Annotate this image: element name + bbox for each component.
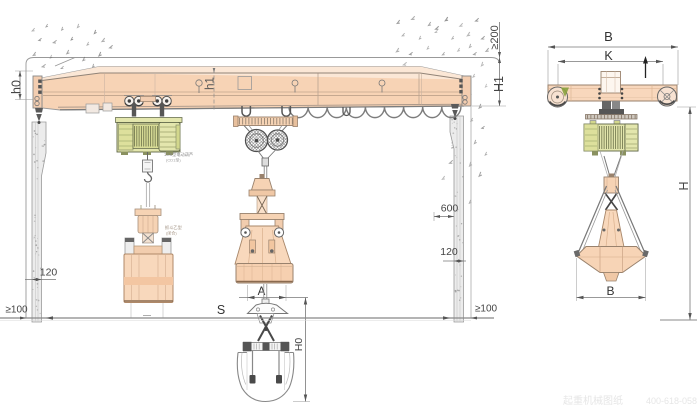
svg-text:h0: h0: [10, 80, 24, 94]
svg-text:≥200: ≥200: [489, 25, 501, 49]
svg-text:H: H: [677, 181, 691, 190]
svg-text:H1: H1: [492, 76, 506, 92]
svg-text:≥100: ≥100: [5, 305, 28, 316]
svg-text:600: 600: [441, 203, 459, 215]
svg-text:K: K: [604, 49, 613, 63]
svg-text:120: 120: [40, 267, 58, 279]
svg-text:≥100: ≥100: [475, 304, 498, 315]
svg-text:h1: h1: [205, 77, 217, 90]
svg-text:B: B: [606, 284, 614, 298]
svg-text:120: 120: [440, 246, 458, 258]
svg-text:S: S: [217, 303, 225, 317]
svg-text:A: A: [258, 286, 266, 298]
svg-text:(CD1型): (CD1型): [166, 157, 181, 163]
svg-text:(闭合): (闭合): [166, 230, 177, 236]
svg-text:H0: H0: [293, 338, 305, 352]
svg-text:起重机械图纸: 起重机械图纸: [563, 394, 623, 407]
svg-text:400-618-058: 400-618-058: [646, 396, 697, 406]
svg-text:B: B: [604, 29, 613, 44]
